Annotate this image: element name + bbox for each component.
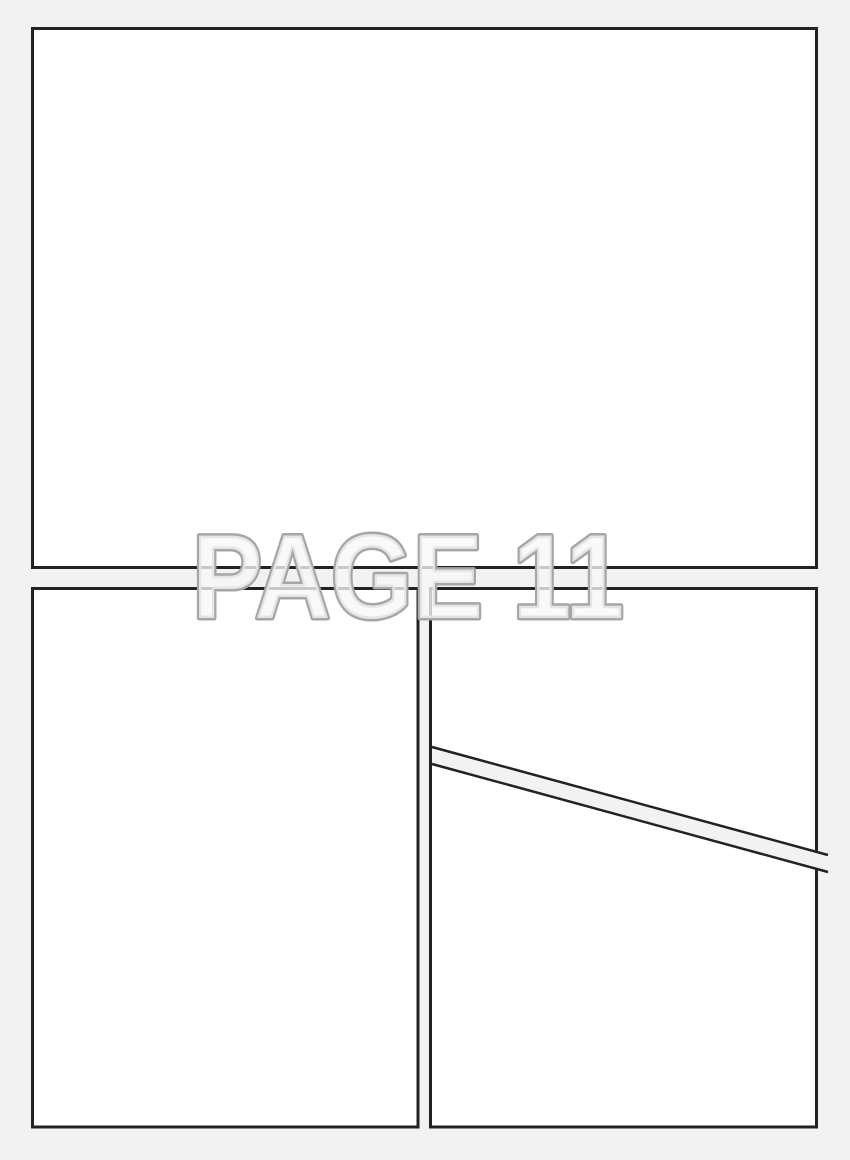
panel-bottom-left (33, 589, 419, 1128)
page-number-watermark: PAGE 11 (192, 510, 624, 644)
page-canvas: PAGE 11 (0, 0, 850, 1160)
panel-top (33, 29, 817, 568)
comic-page-template: PAGE 11 (0, 0, 850, 1160)
panel-right-column (431, 589, 817, 1128)
